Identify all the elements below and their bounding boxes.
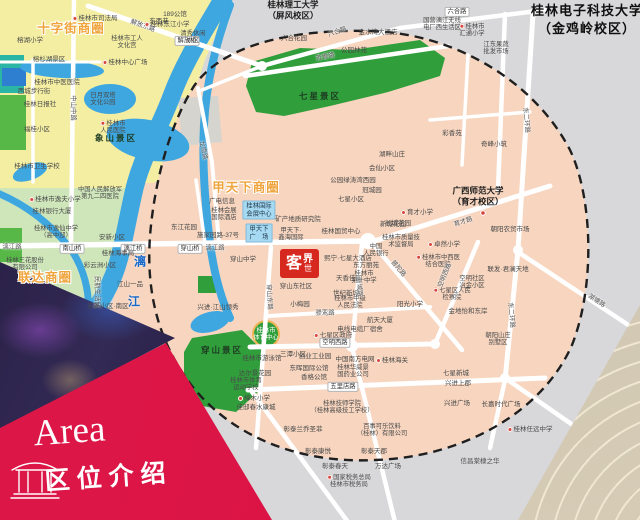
logo-char-jie: 界 (303, 255, 313, 265)
logo-char-ke: 客 (286, 256, 302, 272)
road (71, 0, 74, 245)
road-junction (500, 373, 510, 383)
map-zone (2, 68, 26, 86)
road-junction (430, 339, 440, 349)
road (400, 10, 545, 28)
pavilion-icon (6, 448, 64, 506)
map-canvas: 十字街商圈甲天下商圈联达商圈漓江七星景区穿山景区象山景区榕杉湖景区桂林理工大学（… (0, 0, 640, 520)
road-junction (346, 340, 358, 352)
logo-char-shi: 世 (304, 265, 312, 273)
lake (84, 84, 136, 114)
project-logo: 客 界 世 (280, 249, 319, 278)
road-junction (360, 233, 376, 249)
road (250, 344, 435, 347)
road-junction (257, 61, 267, 71)
map-zone (0, 95, 26, 150)
road-junction (513, 245, 523, 255)
